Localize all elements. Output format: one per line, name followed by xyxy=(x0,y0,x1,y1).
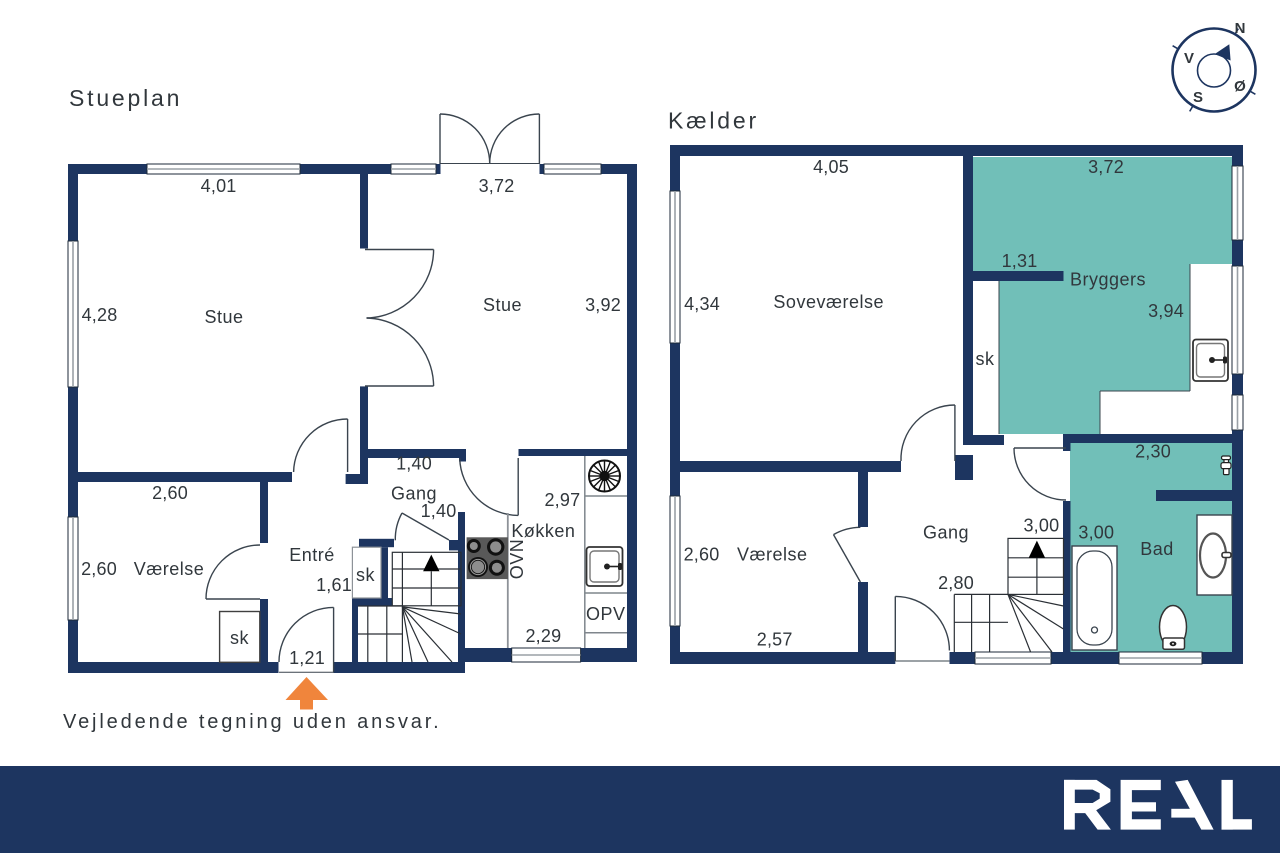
svg-text:Entré: Entré xyxy=(289,545,335,565)
svg-text:1,61: 1,61 xyxy=(316,575,352,595)
svg-text:1,31: 1,31 xyxy=(1002,251,1038,271)
svg-text:Vejledende tegning uden ansvar: Vejledende tegning uden ansvar. xyxy=(63,711,442,733)
svg-text:sk: sk xyxy=(230,628,250,648)
svg-text:sk: sk xyxy=(356,565,376,585)
svg-text:2,80: 2,80 xyxy=(938,573,974,593)
svg-text:Værelse: Værelse xyxy=(737,545,808,565)
svg-text:1,40: 1,40 xyxy=(421,501,457,521)
svg-text:N: N xyxy=(1235,20,1246,37)
svg-text:1,40: 1,40 xyxy=(396,454,432,474)
svg-text:Stueplan: Stueplan xyxy=(69,85,182,111)
svg-text:Ø: Ø xyxy=(1234,78,1246,95)
svg-text:2,29: 2,29 xyxy=(525,626,561,646)
svg-text:3,94: 3,94 xyxy=(1148,301,1184,321)
svg-text:Gang: Gang xyxy=(923,523,969,543)
svg-text:2,97: 2,97 xyxy=(544,490,580,510)
svg-text:V: V xyxy=(1184,50,1194,67)
svg-text:2,57: 2,57 xyxy=(757,630,793,650)
svg-text:3,92: 3,92 xyxy=(585,295,621,315)
svg-text:Stue: Stue xyxy=(204,307,243,327)
svg-text:Kælder: Kælder xyxy=(668,108,759,134)
svg-text:Soveværelse: Soveværelse xyxy=(773,292,884,312)
svg-text:2,60: 2,60 xyxy=(684,545,720,565)
svg-text:2,60: 2,60 xyxy=(152,483,188,503)
svg-text:Bad: Bad xyxy=(1140,539,1174,559)
svg-text:sk: sk xyxy=(976,349,996,369)
svg-text:3,72: 3,72 xyxy=(479,176,515,196)
svg-text:Køkken: Køkken xyxy=(511,521,575,541)
svg-text:3,72: 3,72 xyxy=(1088,157,1124,177)
svg-text:4,34: 4,34 xyxy=(684,294,720,314)
svg-text:2,60: 2,60 xyxy=(81,559,117,579)
svg-text:1,21: 1,21 xyxy=(289,648,325,668)
svg-text:Stue: Stue xyxy=(483,295,522,315)
svg-text:4,05: 4,05 xyxy=(813,157,849,177)
svg-text:OVN: OVN xyxy=(507,539,527,580)
svg-text:Bryggers: Bryggers xyxy=(1070,270,1146,290)
svg-text:Værelse: Værelse xyxy=(134,559,205,579)
svg-text:4,01: 4,01 xyxy=(201,176,237,196)
svg-text:4,28: 4,28 xyxy=(82,305,118,325)
svg-text:OPV: OPV xyxy=(586,604,626,624)
svg-text:3,00: 3,00 xyxy=(1078,523,1114,543)
svg-text:3,00: 3,00 xyxy=(1023,515,1059,535)
svg-text:2,30: 2,30 xyxy=(1135,442,1171,462)
svg-text:S: S xyxy=(1193,89,1203,106)
svg-text:Gang: Gang xyxy=(391,484,437,504)
